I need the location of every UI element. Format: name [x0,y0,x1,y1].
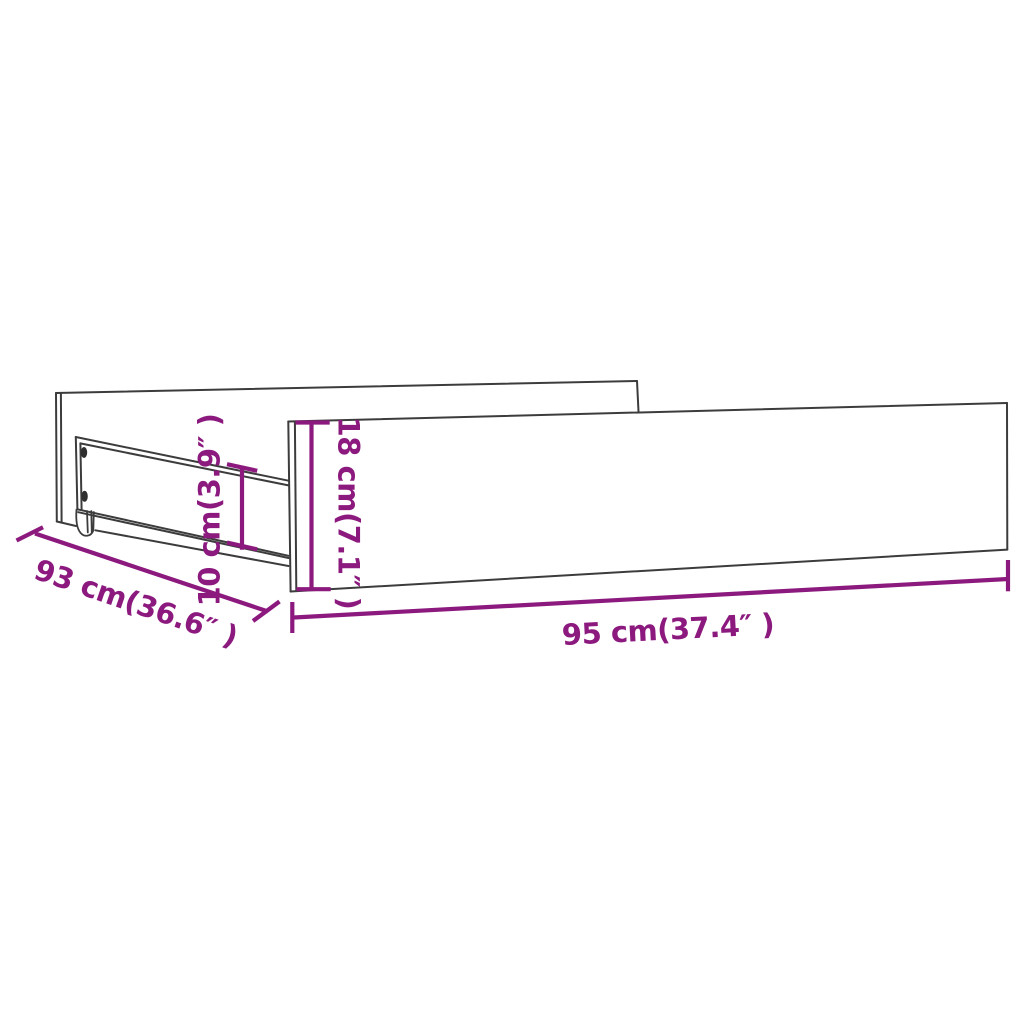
dimension-rail-height-10cm: 10 cm(3.9″ ) [193,414,258,607]
dimension-tick [253,602,280,622]
drawer-dimension-svg: 95 cm(37.4″ ) 93 cm(36.6″ ) 18 cm(7.1″ )… [0,0,1024,1024]
screw-hole-top [81,447,87,458]
dimension-length-95cm: 95 cm(37.4″ ) [292,560,1008,652]
side-rail-outline [76,437,289,558]
product-dimension-diagram: 95 cm(37.4″ ) 93 cm(36.6″ ) 18 cm(7.1″ )… [0,0,1024,1024]
front-panel-outline [288,403,1007,592]
screw-hole-bottom [81,491,87,502]
dimension-label-10cm: 10 cm(3.9″ ) [193,414,227,607]
dimension-label-95cm: 95 cm(37.4″ ) [561,607,775,652]
dimension-front-height-18cm: 18 cm(7.1″ ) [296,417,366,610]
dimension-label-18cm: 18 cm(7.1″ ) [332,417,366,610]
